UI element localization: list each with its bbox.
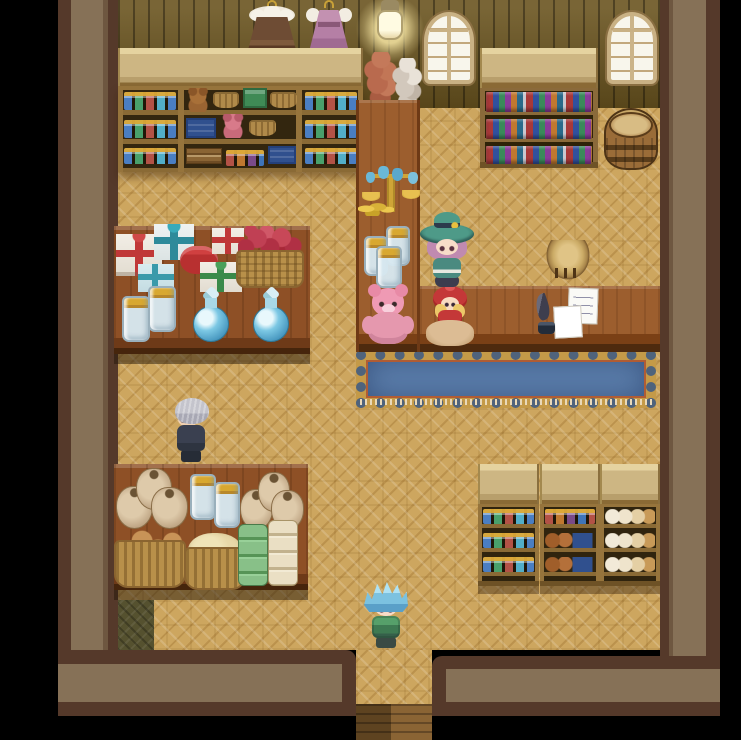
book-row-middle [486, 119, 592, 139]
game-scene [0, 0, 741, 740]
npc-shopkeeper-witch-part-4 [433, 258, 461, 278]
gift-boxes-pile [116, 224, 246, 292]
br3-bread-row-1 [605, 509, 655, 524]
arched-window-right-part-2 [613, 18, 651, 32]
npc-shopkeeper-witch-part-3 [436, 239, 458, 255]
blue-potion-flask-1 [190, 288, 232, 342]
player-hero-part-1 [364, 580, 408, 612]
npc-elderly-man[interactable] [168, 398, 216, 464]
blue-potion-flask-1-part-3 [205, 298, 217, 308]
potion-row-a2 [124, 120, 176, 138]
food-jar-1 [190, 474, 216, 520]
shelf-blue-crate-1 [186, 118, 216, 138]
book-row-bottom [486, 146, 592, 164]
counter-jar-3 [376, 246, 402, 288]
bread-roll-basket [114, 522, 186, 588]
br2-pot-row-2 [545, 557, 595, 572]
fabric-bolt-stack-part-1 [238, 524, 268, 586]
shelf-books-stack [186, 148, 222, 164]
shelf-teddy-brown [186, 88, 210, 112]
arched-window-left-part-2 [430, 18, 468, 32]
npc-shopkeeper-witch-part-6 [434, 212, 460, 228]
shelf-jar-row-warm [226, 150, 264, 166]
hanging-dress-pink [306, 0, 352, 48]
bookshelf-awning [480, 48, 598, 88]
blue-potion-flask-2-part-3 [265, 298, 277, 308]
note-papers [554, 288, 598, 338]
pink-teddy-bear [362, 286, 414, 346]
wooden-barrel-part-3 [606, 138, 656, 168]
wooden-barrel-part-1 [609, 112, 653, 138]
br3-bread-row-3 [605, 557, 655, 572]
potion-row-c3 [305, 148, 357, 164]
blue-potion-flask-2-part-2 [253, 306, 289, 342]
dark-floor-mat [118, 600, 154, 650]
round-stool-part-1 [555, 268, 581, 278]
player-hero-part-4 [376, 637, 396, 648]
left-shelf-awning [118, 48, 363, 88]
fabric-bolt-stack [238, 520, 298, 586]
potion-row-a1 [124, 92, 176, 110]
bread-roll-basket-part-3 [114, 540, 186, 588]
pink-teddy-bear-part-2 [368, 284, 381, 297]
exit-steps[interactable] [356, 704, 432, 740]
red-hood-doll-part-5 [426, 320, 474, 346]
player-hero-part-3 [372, 616, 400, 638]
apple-basket-part-3 [236, 250, 304, 288]
hanging-dress-pink-part-1 [324, 0, 334, 8]
gold-balance-scale-part-5 [378, 166, 389, 179]
shelf-basket-1 [213, 92, 239, 108]
npc-elderly-man-part-1 [175, 398, 209, 424]
br3-bread-row-2 [605, 533, 655, 548]
blue-potion-flask-1-part-2 [193, 306, 229, 342]
wooden-barrel [604, 108, 658, 170]
shelf-teddy-pink [220, 114, 246, 138]
br1-jar-row-3 [483, 557, 534, 572]
blue-counter-carpet-part-2 [360, 399, 652, 405]
quill-and-ink [534, 294, 560, 334]
br-awning-2 [540, 464, 600, 506]
shelf-basket-2 [270, 92, 297, 108]
player-hero[interactable] [360, 580, 412, 648]
coin-stacks [358, 198, 394, 216]
br-awning-3 [600, 464, 660, 506]
red-hood-doll [426, 286, 474, 346]
table-jar-2 [122, 296, 150, 342]
shelf-green-crate [243, 88, 267, 108]
book-row-top [486, 92, 592, 112]
gold-balance-scale-part-6 [408, 172, 418, 184]
br2-pot-row-1 [545, 533, 595, 548]
quill-and-ink-part-2 [538, 322, 555, 334]
br1-jar-row-1 [483, 509, 534, 524]
gold-balance-scale-part-4 [402, 190, 420, 199]
hanging-lantern [370, 0, 410, 48]
npc-elderly-man-part-3 [177, 425, 205, 451]
potion-row-a3 [124, 148, 176, 164]
blue-potion-flask-2 [250, 288, 292, 342]
potion-row-c1 [305, 92, 357, 110]
arched-window-left [424, 12, 474, 84]
grain-basket [184, 528, 246, 590]
pink-teddy-bear-part-6 [362, 316, 376, 334]
potion-row-c2 [305, 120, 357, 138]
game-viewport [0, 0, 741, 740]
br-awning-1 [478, 464, 539, 506]
br1-jar-row-2 [483, 533, 534, 548]
quill-and-ink-part-1 [532, 293, 552, 322]
npc-shopkeeper-witch[interactable] [420, 212, 474, 288]
shelf-blue-crate-2 [268, 146, 296, 164]
hanging-lantern-part-3 [377, 10, 403, 40]
food-jar-2 [214, 482, 240, 528]
apple-basket [236, 226, 304, 288]
hanging-dress-brown [246, 0, 298, 50]
table-jar-1 [148, 286, 176, 332]
arched-window-right [607, 12, 657, 84]
fabric-bolt-stack-part-2 [268, 520, 298, 586]
grain-basket-part-3 [184, 547, 246, 590]
round-stool [546, 240, 590, 280]
hanging-dress-pink-part-4 [318, 22, 340, 27]
br2-jar-row [545, 509, 595, 524]
blue-counter-carpet [356, 350, 656, 408]
shelf-basket-3 [249, 120, 276, 136]
npc-elderly-man-part-4 [181, 450, 201, 462]
hanging-dress-brown-part-3 [248, 17, 296, 50]
